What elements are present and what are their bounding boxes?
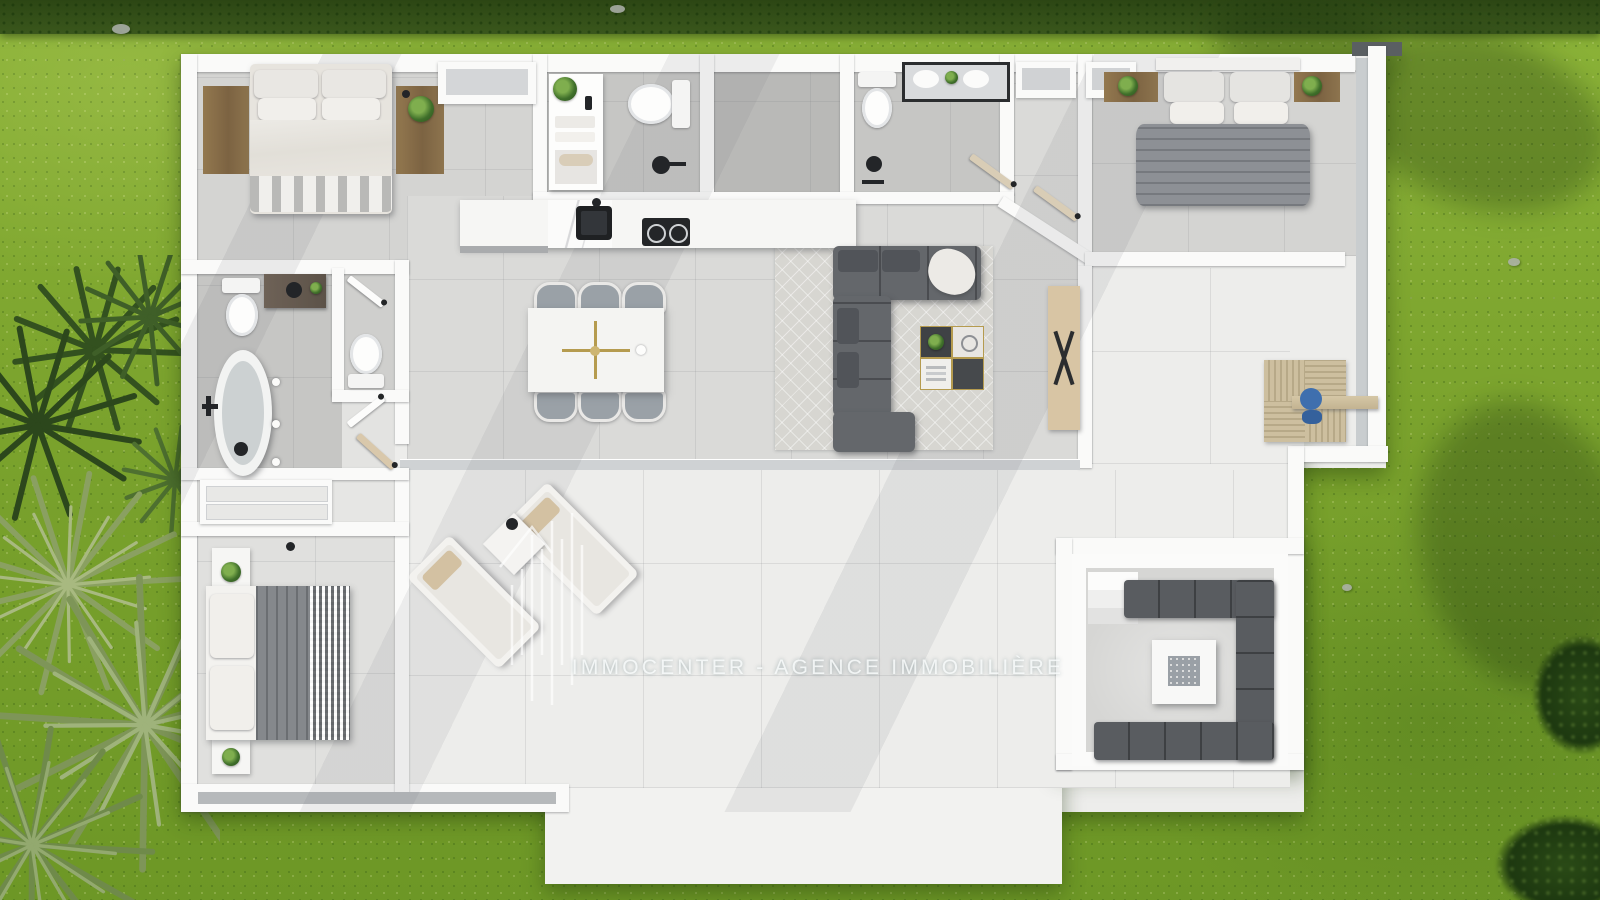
kitchen-sink xyxy=(576,206,612,240)
duvet xyxy=(250,120,392,178)
plate xyxy=(636,345,646,355)
nightstand xyxy=(203,86,249,174)
wall xyxy=(1085,252,1345,266)
shower-bar xyxy=(862,180,884,184)
nightstand xyxy=(212,740,250,774)
wall xyxy=(395,468,409,794)
agency-logo-icon xyxy=(492,505,622,715)
gray-blanket xyxy=(1136,124,1310,206)
plant xyxy=(945,71,958,84)
pillow xyxy=(258,98,316,120)
pillow xyxy=(1170,102,1224,124)
pillow xyxy=(210,666,254,730)
watermark-text: IMMOCENTER - AGENCE IMMOBILIÈRE xyxy=(548,656,1088,680)
wall xyxy=(332,268,344,396)
double-bed xyxy=(1136,58,1310,206)
coffee-table xyxy=(920,358,952,390)
centerpiece xyxy=(590,346,600,356)
pillow xyxy=(1234,102,1288,124)
candle xyxy=(272,378,280,386)
terrace-low-wall xyxy=(400,460,1080,470)
pebble xyxy=(1342,584,1352,591)
sofa-pillow xyxy=(882,250,920,272)
shower-head xyxy=(866,156,882,172)
plant xyxy=(310,282,322,294)
checkered-blanket xyxy=(310,586,350,740)
towel-roll xyxy=(559,154,593,166)
candle xyxy=(272,458,280,466)
kitchen-counter xyxy=(460,200,856,248)
wall xyxy=(332,390,409,402)
double-bed xyxy=(250,64,392,214)
pebble xyxy=(112,24,130,34)
pillow xyxy=(1164,72,1224,102)
vanity-dark xyxy=(264,274,326,308)
pillow xyxy=(254,70,318,98)
sectional-chaise xyxy=(833,412,915,452)
wall xyxy=(1288,446,1304,768)
dining-chair xyxy=(578,390,622,422)
candle xyxy=(272,420,280,428)
sink xyxy=(913,70,939,88)
wardrobe xyxy=(438,62,536,104)
pebble xyxy=(1508,258,1520,266)
pillow xyxy=(322,70,386,98)
tub-faucet xyxy=(206,396,211,416)
towel-blue xyxy=(1300,388,1322,410)
wall xyxy=(1056,538,1072,770)
east-corridor-floor xyxy=(1092,268,1290,464)
plant xyxy=(553,77,577,101)
coffee-table xyxy=(920,326,952,358)
plant xyxy=(1118,76,1138,96)
faucet xyxy=(585,96,592,110)
cooktop xyxy=(642,218,690,246)
freestanding-bathtub xyxy=(214,350,272,476)
shower-arm xyxy=(668,162,686,166)
coffee-table xyxy=(952,358,984,390)
wall xyxy=(1292,446,1388,462)
shelf xyxy=(555,150,597,184)
fire-pit-gravel xyxy=(1168,656,1200,686)
plant xyxy=(408,96,434,122)
striped-blanket xyxy=(250,176,392,212)
outdoor-sectional xyxy=(1094,722,1274,760)
gray-blanket xyxy=(256,586,310,740)
entry-storage-floor xyxy=(714,70,840,194)
double-vanity xyxy=(902,62,1010,102)
lamp xyxy=(402,90,410,98)
kitchen-faucet xyxy=(592,198,601,207)
wall xyxy=(1056,538,1304,554)
built-in-closet xyxy=(200,480,332,524)
coffee-table xyxy=(952,326,984,358)
wall xyxy=(181,54,197,806)
dining-chair xyxy=(622,390,666,422)
dining-chair xyxy=(534,390,578,422)
wall xyxy=(700,54,714,204)
pebble xyxy=(610,5,625,13)
sofa-pillow xyxy=(838,250,878,272)
console-table xyxy=(1048,286,1080,430)
counter-shadow xyxy=(460,246,548,253)
dining-table xyxy=(528,308,664,392)
wall xyxy=(1078,266,1092,468)
wall xyxy=(181,468,409,480)
wall xyxy=(840,54,854,204)
closet xyxy=(1016,62,1076,98)
pillow xyxy=(1230,72,1290,102)
tub-shower-head xyxy=(234,442,248,456)
wardrobe-inner xyxy=(446,69,528,95)
pillow xyxy=(322,98,380,120)
towel xyxy=(555,116,595,128)
plant xyxy=(1302,76,1322,96)
vanity xyxy=(549,74,603,190)
fire-pit-table xyxy=(1152,640,1216,704)
towel-blue xyxy=(1302,410,1322,424)
sofa-pillow xyxy=(837,352,859,388)
headboard xyxy=(1156,58,1300,70)
wall xyxy=(395,260,409,444)
sofa-pillow xyxy=(837,308,859,344)
towel xyxy=(555,132,595,142)
wall-shadow xyxy=(198,792,556,804)
double-bed xyxy=(206,586,350,740)
vessel-sink xyxy=(286,282,302,298)
ceiling-light xyxy=(286,542,295,551)
wall xyxy=(181,260,409,274)
sink xyxy=(963,70,989,88)
floor-plan-scene: IMMOCENTER - AGENCE IMMOBILIÈRE xyxy=(0,0,1600,900)
pillow xyxy=(210,594,254,658)
wall xyxy=(181,522,409,536)
